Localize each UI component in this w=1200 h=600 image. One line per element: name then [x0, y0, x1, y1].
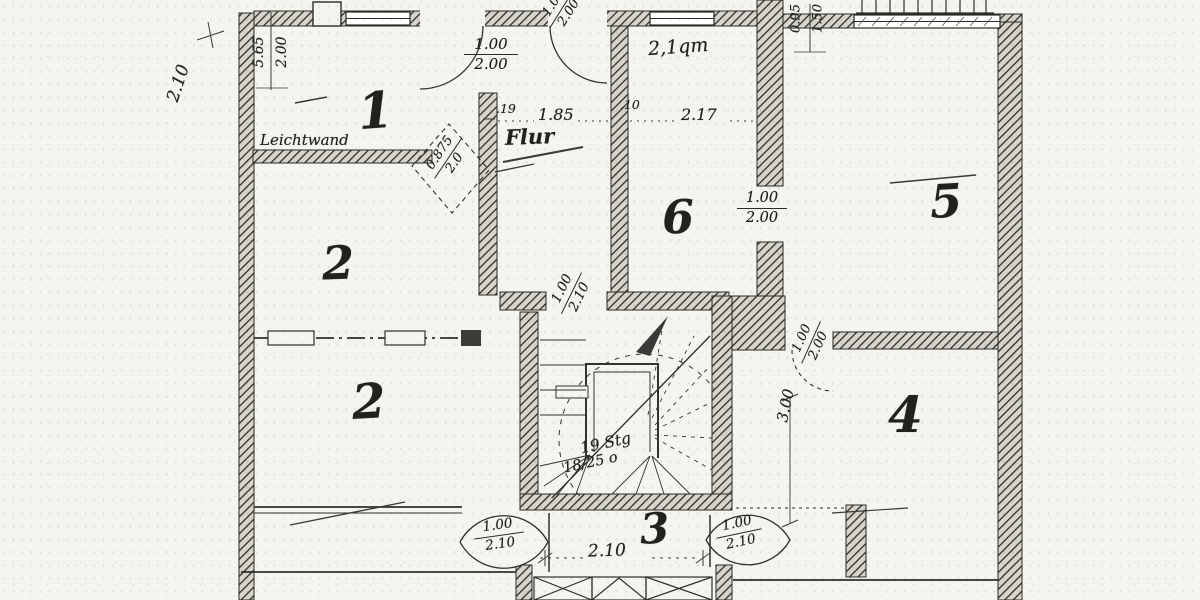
wall-room6-bottom-right [607, 292, 729, 310]
dim-top-left-height: 2.00 [275, 32, 289, 72]
wall-room6-room5-upper [757, 0, 783, 186]
wall-post-bottom-right [716, 565, 732, 600]
pillar-top [313, 2, 341, 26]
wall-flur-room6 [611, 26, 628, 292]
wall-stairwell-left [520, 312, 538, 510]
room-label-5: 5 [929, 177, 963, 225]
wall-post-bottom-left [516, 565, 532, 600]
room-label-4: 4 [888, 390, 923, 440]
wall-leichtwand [253, 150, 432, 163]
label-leichtwand: Leichtwand [260, 133, 349, 148]
room-label-2-lower: 2 [351, 377, 387, 427]
label-flur: Flur [505, 125, 555, 148]
dim-wall-19: .19 [496, 103, 516, 116]
door-dim-room1-top: 1.00 2.00 [464, 36, 518, 74]
dim-top-left-width: 5.65 [252, 32, 266, 72]
wall-outer-left [239, 13, 254, 600]
wall-post-corridor [846, 505, 866, 577]
wall-stairwell-right [712, 296, 732, 510]
floorplan-scan: 2.10 5.65 2.00 Leichtwand 1 2 2 3 4 5 6 … [0, 0, 1200, 600]
bottom-x-panels [534, 577, 712, 600]
wall-room5-room4 [833, 332, 998, 349]
railing-top-right [856, 0, 994, 13]
dim-top-right-b: 1.50 [812, 1, 825, 37]
wall-stairwell-bottom [520, 494, 732, 510]
room-label-1: 1 [356, 85, 394, 137]
dim-room6-width: 2.17 [681, 107, 717, 123]
room-label-3: 3 [639, 507, 670, 550]
dim-top-right-a: 0.95 [790, 1, 803, 37]
label-small-room-area: 2,1qm [647, 36, 709, 59]
room-label-6: 6 [661, 193, 695, 240]
dim-flur-width: 1.85 [538, 107, 574, 123]
door-arc-flur [550, 26, 607, 83]
wall-flur-left [479, 93, 497, 295]
wall-room6-bottom-left [500, 292, 546, 310]
door-dim-corridor-left: 1.00 2.10 [472, 515, 526, 556]
wall-outer-right [998, 22, 1022, 600]
dim-corridor-width: 2.10 [588, 542, 626, 560]
room-label-2-upper: 2 [321, 239, 355, 286]
dim-wall-10: .10 [620, 99, 640, 112]
door-dim-room5: 1.00 2.00 [737, 190, 787, 226]
